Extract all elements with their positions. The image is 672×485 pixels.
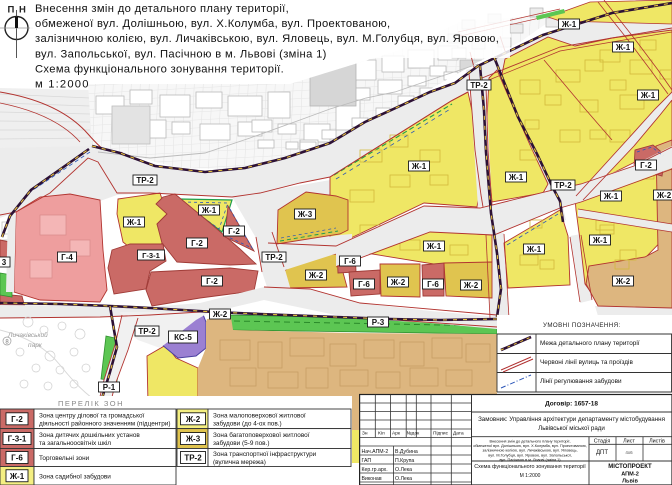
svg-text:Кіл: Кіл [378, 431, 385, 437]
svg-text:П.Крупа: П.Крупа [395, 458, 414, 464]
svg-text:Лист: Лист [623, 439, 635, 445]
svg-text:Ж-2: Ж-2 [212, 310, 228, 319]
svg-text:3: 3 [2, 258, 7, 267]
svg-text:ГАП: ГАП [362, 458, 372, 464]
svg-text:Внесення змін до детального пл: Внесення змін до детального плану терито… [489, 440, 570, 444]
svg-text:Виконав: Виконав [362, 476, 382, 482]
svg-text:вул. Запольської, вул. Пасічно: вул. Запольської, вул. Пасічною в м. Льв… [35, 48, 327, 60]
svg-text:Г-2: Г-2 [640, 161, 652, 170]
svg-text:Ж-1: Ж-1 [201, 206, 217, 215]
svg-text:Ж-1: Ж-1 [592, 236, 608, 245]
svg-text:Ж-3: Ж-3 [297, 210, 313, 219]
svg-text:Г-6: Г-6 [11, 454, 23, 463]
svg-text:4х6: 4х6 [625, 450, 633, 455]
svg-text:Нач.АПМ-2: Нач.АПМ-2 [362, 449, 389, 455]
svg-text:Ж-2: Ж-2 [615, 277, 631, 286]
svg-text:Замовник: Управління архітекту: Замовник: Управління архітектури департа… [478, 416, 665, 423]
svg-text:Зона багатоповерхової житлової: Зона багатоповерхової житлової [213, 431, 310, 439]
svg-text:АПМ-2: АПМ-2 [621, 472, 639, 478]
svg-text:ДПТ: ДПТ [596, 450, 608, 456]
svg-text:О.Лека: О.Лека [395, 467, 412, 473]
svg-text:Г-6: Г-6 [427, 280, 439, 289]
svg-text:ТР-2: ТР-2 [554, 181, 572, 190]
svg-text:МІСТОПРОЕКТ: МІСТОПРОЕКТ [608, 464, 652, 470]
svg-text:Ж-1: Ж-1 [426, 242, 442, 251]
svg-text:Г-2: Г-2 [11, 415, 23, 424]
svg-text:Кер.гр.арх.: Кер.гр.арх. [362, 467, 388, 473]
svg-text:Ж-1: Ж-1 [411, 162, 427, 171]
svg-text:Ж-1: Ж-1 [526, 245, 542, 254]
svg-text:Ж-1: Ж-1 [9, 472, 25, 481]
svg-text:Межа детального плану територі: Межа детального плану території [540, 339, 640, 347]
svg-text:Підпис: Підпис [433, 431, 449, 437]
svg-text:Торговельні зони: Торговельні зони [39, 454, 90, 462]
svg-text:Львівської міської ради: Львівської міської ради [538, 425, 605, 432]
svg-text:Ж-1: Ж-1 [561, 20, 577, 29]
svg-text:Зона центру ділової та громадс: Зона центру ділової та громадської [39, 411, 145, 419]
svg-text:УМОВНІ ПОЗНАЧЕННЯ:: УМОВНІ ПОЗНАЧЕННЯ: [543, 322, 621, 329]
svg-text:Личаківський: Личаківський [7, 331, 48, 339]
svg-text:м 1:2000: м 1:2000 [35, 79, 90, 91]
svg-text:ТР-2: ТР-2 [138, 327, 156, 336]
svg-text:ТР-2: ТР-2 [184, 454, 202, 463]
svg-text:залізничною колією, вул. Личак: залізничною колією, вул. Личаківською, в… [482, 449, 577, 453]
svg-text:Ж-2: Ж-2 [656, 191, 672, 200]
svg-text:Стадія: Стадія [594, 439, 611, 445]
svg-text:Ж-1: Ж-1 [126, 218, 142, 227]
svg-text:Червоні лінії вулиць та проїзд: Червоні лінії вулиць та проїздів [540, 358, 633, 366]
svg-text:діяльності районного значенням: діяльності районного значенням (підцентр… [39, 419, 170, 427]
svg-text:Г-2: Г-2 [191, 239, 203, 248]
svg-text:обмеженої вул. Долішньою, вул.: обмеженої вул. Долішньою, вул. Х.Колумба… [473, 444, 587, 448]
svg-text:В.Дубина: В.Дубина [395, 449, 418, 455]
svg-text:Зн: Зн [362, 431, 368, 437]
svg-text:П: П [8, 5, 15, 16]
svg-text:№док: №док [407, 431, 421, 437]
svg-text:Ж-1: Ж-1 [615, 43, 631, 52]
svg-text:Р-1: Р-1 [103, 383, 116, 392]
svg-text:КС-5: КС-5 [174, 333, 192, 342]
svg-text:обмеженої вул. Долішньою, вул.: обмеженої вул. Долішньою, вул. Х.Колумба… [35, 18, 390, 30]
svg-text:Львів: Львів [622, 479, 638, 485]
svg-text:Ж-1: Ж-1 [508, 173, 524, 182]
svg-text:Схема функціонального зонуванн: Схема функціонального зонування територі… [35, 63, 284, 75]
svg-text:Внесення змін до детального пл: Внесення змін до детального плану терито… [35, 3, 289, 15]
svg-text:Ж-1: Ж-1 [640, 91, 656, 100]
svg-text:Зона дитячих дошкільних устано: Зона дитячих дошкільних установ [39, 431, 140, 439]
svg-text:Лінії регулювання забудови: Лінії регулювання забудови [540, 377, 622, 385]
svg-text:Схема функціонального зонуванн: Схема функціонального зонування територі… [474, 464, 586, 470]
svg-text:О.Лека: О.Лека [395, 476, 412, 482]
svg-text:вул. Пасічною в м. Львові (змі: вул. Пасічною в м. Львові (зміна 1) [499, 458, 561, 462]
svg-text:Листів: Листів [649, 439, 665, 445]
svg-text:Г-2: Г-2 [206, 277, 218, 286]
svg-text:Ж-3: Ж-3 [185, 435, 201, 444]
svg-text:Г-2: Г-2 [228, 227, 240, 236]
svg-text:Р-3: Р-3 [372, 318, 385, 327]
svg-text:Ж-2: Ж-2 [308, 271, 324, 280]
svg-text:Г-6: Г-6 [344, 257, 356, 266]
svg-text:парк: парк [28, 342, 43, 349]
svg-text:ТР-2: ТР-2 [136, 176, 154, 185]
svg-text:Дата: Дата [453, 431, 464, 437]
svg-text:Г-3-1: Г-3-1 [142, 251, 161, 260]
svg-text:забудови (до 4-ох пов.): забудови (до 4-ох пов.) [213, 419, 282, 427]
svg-text:Г-4: Г-4 [61, 253, 73, 262]
svg-text:ПЕРЕЛІК ЗОН: ПЕРЕЛІК ЗОН [58, 399, 124, 408]
svg-text:Ж-1: Ж-1 [603, 192, 619, 201]
svg-text:Договір: 1657-18: Договір: 1657-18 [545, 400, 598, 408]
svg-text:Зона малоповерхової житлової: Зона малоповерхової житлової [213, 412, 306, 419]
svg-text:та загальноосвітніх шкіл: та загальноосвітніх шкіл [39, 439, 111, 447]
svg-text:(вулична мережа): (вулична мережа) [213, 459, 266, 466]
svg-text:Н: Н [19, 5, 26, 16]
svg-text:Зона транспортної інфраструкту: Зона транспортної інфраструктури [213, 450, 317, 458]
svg-text:Ж-2: Ж-2 [185, 415, 201, 424]
svg-text:ТР-2: ТР-2 [265, 253, 283, 262]
svg-text:Г-3-1: Г-3-1 [8, 435, 27, 444]
svg-text:Арк: Арк [392, 431, 401, 437]
svg-text:забудови (5-9 пов.): забудови (5-9 пов.) [213, 439, 269, 447]
svg-text:Ж-2: Ж-2 [463, 281, 479, 290]
svg-text:Г-6: Г-6 [358, 280, 370, 289]
svg-text:Зона садибної забудови: Зона садибної забудови [39, 472, 111, 480]
svg-text:М 1:2000: М 1:2000 [520, 473, 541, 479]
svg-text:залізничною колією, вул. Личак: залізничною колією, вул. Личаківською, в… [35, 33, 499, 45]
svg-text:ТР-2: ТР-2 [470, 81, 488, 90]
svg-text:Ж-2: Ж-2 [390, 278, 406, 287]
svg-text:вул. М.Голубця, вул. Яровою, в: вул. М.Голубця, вул. Яровою, вул. Заполь… [488, 453, 571, 457]
